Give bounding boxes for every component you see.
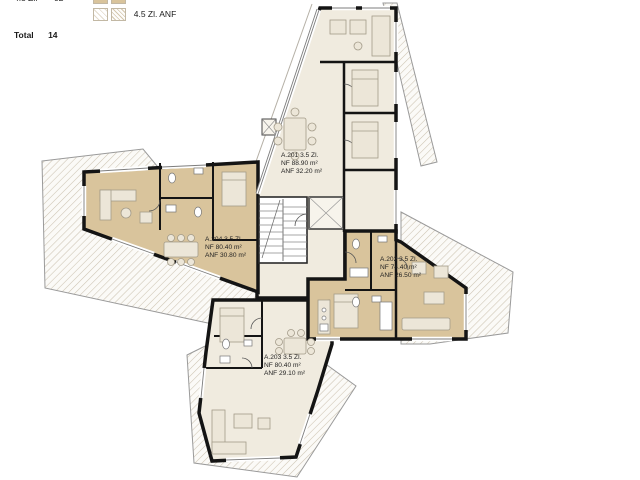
legend: 4.5 Zl. 02 4.5 Zl. 4.5 Zl. ANF Total 14 bbox=[0, 0, 230, 60]
legend-unit-row: 4.5 Zl. 02 bbox=[14, 0, 63, 3]
svg-text:A.204 3.5 Zl.: A.204 3.5 Zl. bbox=[205, 236, 243, 243]
svg-text:A.203 3.5 Zl.: A.203 3.5 Zl. bbox=[264, 354, 302, 361]
svg-text:ANF 30.80 m²: ANF 30.80 m² bbox=[205, 252, 247, 259]
svg-text:NF 74.40 m²: NF 74.40 m² bbox=[380, 264, 417, 271]
legend-swatch-row-2: 4.5 Zl. ANF bbox=[93, 8, 176, 21]
svg-text:A.202 3.5 Zl.: A.202 3.5 Zl. bbox=[380, 256, 418, 263]
svg-text:A.201 3.5 Zl.: A.201 3.5 Zl. bbox=[281, 152, 319, 159]
legend-swatch-row-1: 4.5 Zl. bbox=[93, 0, 157, 4]
svg-text:NF 88.90 m²: NF 88.90 m² bbox=[281, 160, 318, 167]
floor-plan-page: A.201 3.5 Zl. NF 88.90 m² ANF 32.20 m² A… bbox=[0, 0, 640, 480]
legend-swatch-label-2: 4.5 Zl. ANF bbox=[134, 9, 177, 19]
label-a201: A.201 3.5 Zl. NF 88.90 m² ANF 32.20 m² bbox=[281, 152, 323, 175]
legend-total-row: Total 14 bbox=[14, 30, 58, 40]
legend-total-label: Total bbox=[14, 30, 34, 40]
swatch-hatch-icon bbox=[111, 8, 126, 21]
svg-text:ANF 29.10 m²: ANF 29.10 m² bbox=[264, 370, 306, 377]
swatch-solid-icon bbox=[111, 0, 126, 4]
swatch-hatch-icon bbox=[93, 8, 108, 21]
legend-total-value: 14 bbox=[48, 30, 57, 40]
label-a204: A.204 3.5 Zl. NF 80.40 m² ANF 30.80 m² bbox=[205, 236, 247, 259]
svg-text:NF 80.40 m²: NF 80.40 m² bbox=[205, 244, 242, 251]
legend-swatch-label-1: 4.5 Zl. bbox=[134, 0, 158, 2]
legend-unit-label: 4.5 Zl. bbox=[14, 0, 38, 3]
legend-unit-count: 02 bbox=[54, 0, 63, 3]
floor-plan-drawing: A.201 3.5 Zl. NF 88.90 m² ANF 32.20 m² A… bbox=[0, 0, 640, 480]
label-a203: A.203 3.5 Zl. NF 80.40 m² ANF 29.10 m² bbox=[264, 354, 306, 377]
svg-text:ANF 32.20 m²: ANF 32.20 m² bbox=[281, 168, 323, 175]
label-a202: A.202 3.5 Zl. NF 74.40 m² ANF 26.50 m² bbox=[380, 256, 422, 279]
svg-text:ANF 26.50 m²: ANF 26.50 m² bbox=[380, 272, 422, 279]
svg-text:NF 80.40 m²: NF 80.40 m² bbox=[264, 362, 301, 369]
swatch-solid-icon bbox=[93, 0, 108, 4]
